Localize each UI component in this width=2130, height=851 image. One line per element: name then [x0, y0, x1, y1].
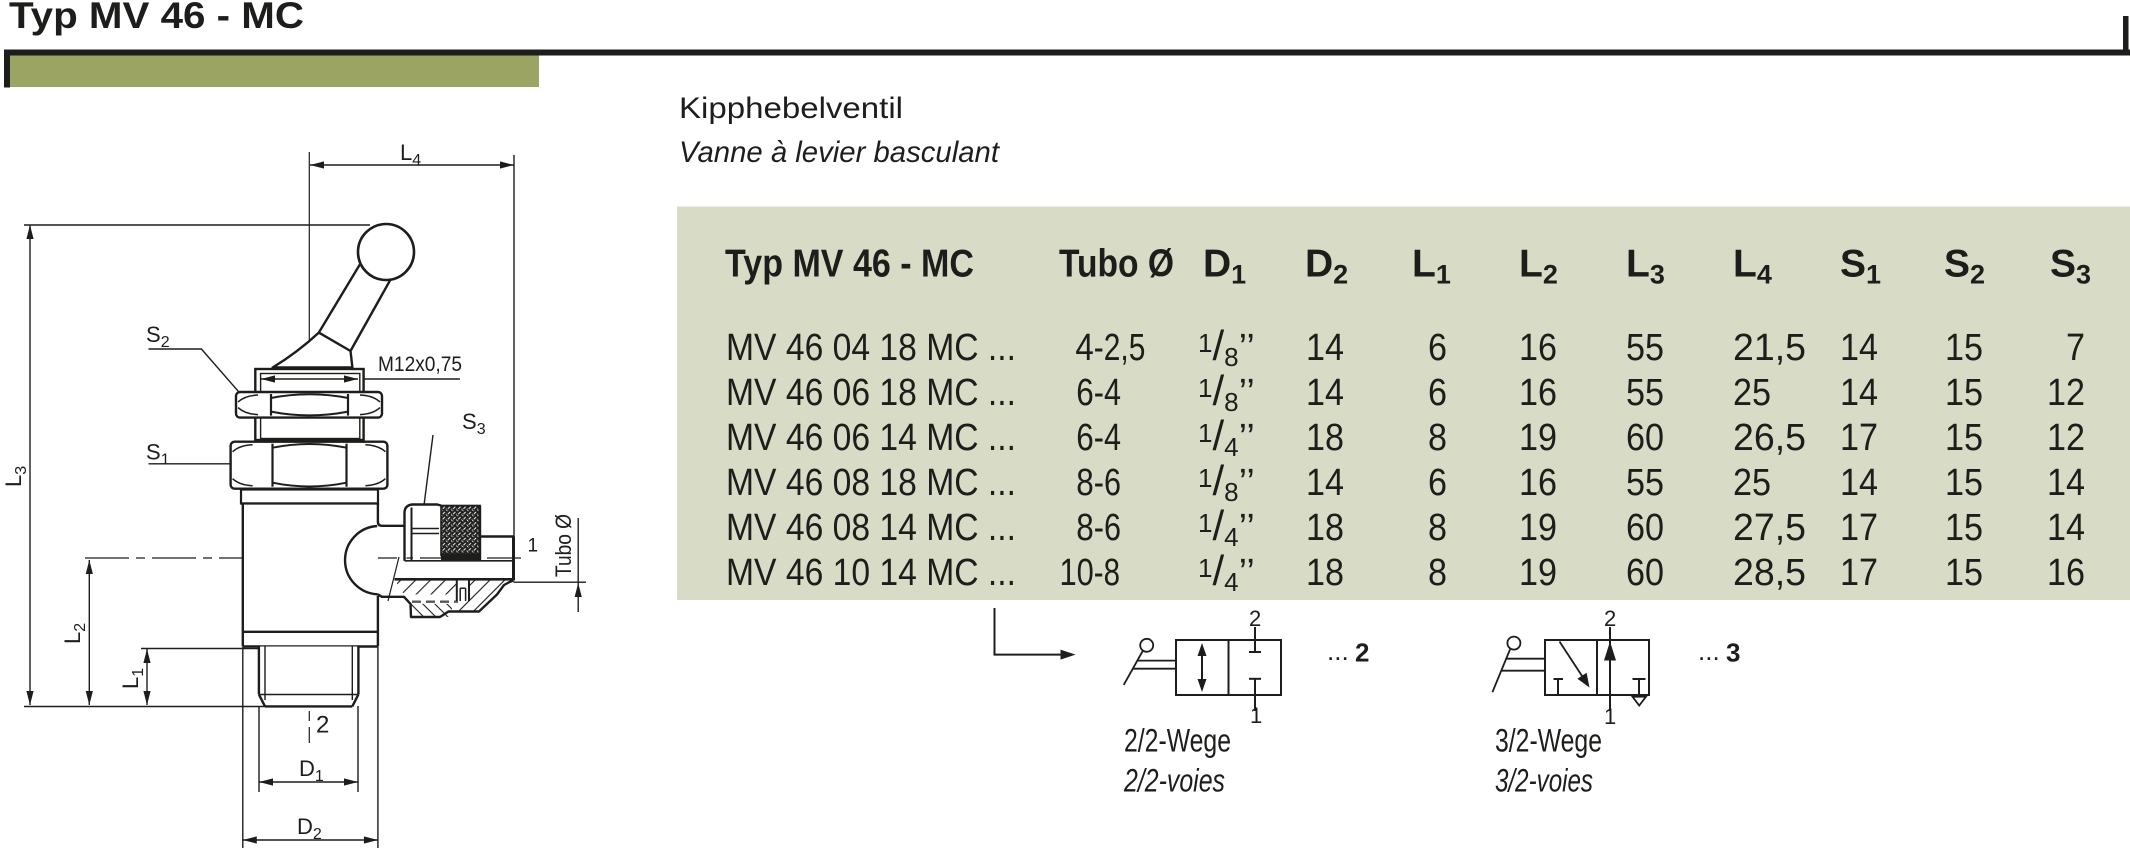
svg-text:2: 2	[1249, 606, 1261, 631]
svg-text:28,5: 28,5	[1733, 552, 1806, 594]
svg-text:8: 8	[1428, 507, 1447, 549]
svg-text:...: ...	[1327, 636, 1349, 666]
svg-text:L3: L3	[1, 466, 30, 487]
svg-text:MV 46 06 18 MC ...: MV 46 06 18 MC ...	[726, 372, 1016, 414]
svg-text:L1: L1	[118, 668, 147, 689]
svg-text:MV 46 04 18 MC ...: MV 46 04 18 MC ...	[726, 327, 1016, 369]
svg-text:18: 18	[1306, 507, 1344, 549]
svg-text:6: 6	[1428, 327, 1447, 369]
svg-text:3/2-voies: 3/2-voies	[1495, 763, 1593, 799]
svg-text:15: 15	[1945, 327, 1983, 369]
svg-text:18: 18	[1306, 552, 1344, 594]
svg-text:16: 16	[1519, 462, 1557, 504]
svg-text:-6: -6	[1094, 507, 1121, 549]
svg-text:MV 46 08 14 MC ...: MV 46 08 14 MC ...	[726, 507, 1016, 549]
svg-text:S2: S2	[146, 322, 170, 351]
svg-text:19: 19	[1519, 417, 1557, 459]
svg-text:55: 55	[1626, 327, 1664, 369]
svg-text:2: 2	[1355, 638, 1369, 668]
svg-text:19: 19	[1519, 552, 1557, 594]
svg-text:8: 8	[1428, 552, 1447, 594]
svg-text:60: 60	[1626, 507, 1664, 549]
svg-text:15: 15	[1945, 462, 1983, 504]
svg-text:MV 46 10 14 MC ...: MV 46 10 14 MC ...	[726, 552, 1016, 594]
svg-text:D1: D1	[299, 756, 324, 785]
svg-text:1: 1	[1604, 704, 1616, 729]
svg-text:16: 16	[1519, 372, 1557, 414]
svg-text:14: 14	[1306, 327, 1344, 369]
svg-text:21,5: 21,5	[1733, 327, 1806, 369]
svg-text:15: 15	[1945, 507, 1983, 549]
svg-text:14: 14	[1840, 327, 1878, 369]
svg-text:4: 4	[1075, 327, 1093, 369]
svg-text:14: 14	[1306, 462, 1344, 504]
svg-text:27,5: 27,5	[1733, 507, 1806, 549]
svg-text:14: 14	[1840, 462, 1878, 504]
svg-text:2/2-voies: 2/2-voies	[1123, 763, 1225, 799]
svg-text:6: 6	[1076, 372, 1094, 414]
svg-text:Tubo Ø: Tubo Ø	[1059, 243, 1174, 286]
svg-text:15: 15	[1945, 417, 1983, 459]
svg-text:-8: -8	[1094, 552, 1120, 594]
svg-text:-6: -6	[1094, 462, 1121, 504]
svg-text:1: 1	[528, 536, 539, 557]
svg-text:7: 7	[2066, 327, 2085, 369]
svg-text:8: 8	[1076, 462, 1094, 504]
svg-text:2: 2	[316, 712, 329, 739]
svg-text:MV 46 06 14 MC ...: MV 46 06 14 MC ...	[726, 417, 1016, 459]
svg-text:16: 16	[1519, 327, 1557, 369]
svg-text:12: 12	[2047, 372, 2085, 414]
svg-text:L4: L4	[400, 140, 421, 169]
svg-text:14: 14	[1306, 372, 1344, 414]
svg-text:M12x0,75: M12x0,75	[378, 353, 462, 376]
svg-text:18: 18	[1306, 417, 1344, 459]
svg-text:14: 14	[1840, 372, 1878, 414]
svg-text:16: 16	[2047, 552, 2085, 594]
svg-text:Typ MV 46 - MC: Typ MV 46 - MC	[725, 243, 974, 286]
svg-text:55: 55	[1626, 372, 1664, 414]
svg-text:-4: -4	[1094, 372, 1121, 414]
svg-text:2/2-Wege: 2/2-Wege	[1124, 723, 1231, 759]
svg-text:19: 19	[1519, 507, 1557, 549]
svg-text:10: 10	[1060, 552, 1094, 594]
svg-text:8: 8	[1428, 417, 1447, 459]
svg-text:Kipphebelventil: Kipphebelventil	[679, 92, 903, 125]
svg-text:60: 60	[1626, 552, 1664, 594]
svg-text:12: 12	[2047, 417, 2085, 459]
svg-text:15: 15	[1945, 552, 1983, 594]
svg-text:8: 8	[1076, 507, 1094, 549]
svg-text:15: 15	[1945, 372, 1983, 414]
svg-text:25: 25	[1733, 372, 1771, 414]
svg-text:S3: S3	[462, 409, 486, 438]
svg-text:L2: L2	[60, 623, 89, 644]
svg-text:26,5: 26,5	[1733, 417, 1806, 459]
svg-text:17: 17	[1840, 552, 1878, 594]
svg-text:MV 46 08 18 MC ...: MV 46 08 18 MC ...	[726, 462, 1016, 504]
svg-text:6: 6	[1428, 372, 1447, 414]
svg-text:2: 2	[1604, 606, 1616, 631]
svg-text:...: ...	[1698, 636, 1720, 666]
svg-text:25: 25	[1733, 462, 1771, 504]
svg-text:3/2-Wege: 3/2-Wege	[1495, 723, 1602, 759]
svg-text:D2: D2	[297, 814, 322, 843]
svg-text:60: 60	[1626, 417, 1664, 459]
svg-text:Vanne à levier basculant: Vanne à levier basculant	[679, 136, 1001, 169]
svg-text:17: 17	[1840, 507, 1878, 549]
svg-text:6: 6	[1428, 462, 1447, 504]
svg-text:14: 14	[2047, 462, 2085, 504]
svg-text:6: 6	[1076, 417, 1094, 459]
svg-text:Tubo Ø: Tubo Ø	[551, 514, 576, 577]
svg-text:1: 1	[1250, 703, 1262, 728]
svg-text:55: 55	[1626, 462, 1664, 504]
svg-text:-2,5: -2,5	[1094, 327, 1146, 369]
svg-text:17: 17	[1840, 417, 1878, 459]
svg-text:14: 14	[2047, 507, 2085, 549]
svg-text:3: 3	[1726, 638, 1740, 668]
svg-text:-4: -4	[1094, 417, 1121, 459]
svg-text:Typ MV 46 - MC: Typ MV 46 - MC	[9, 0, 304, 36]
